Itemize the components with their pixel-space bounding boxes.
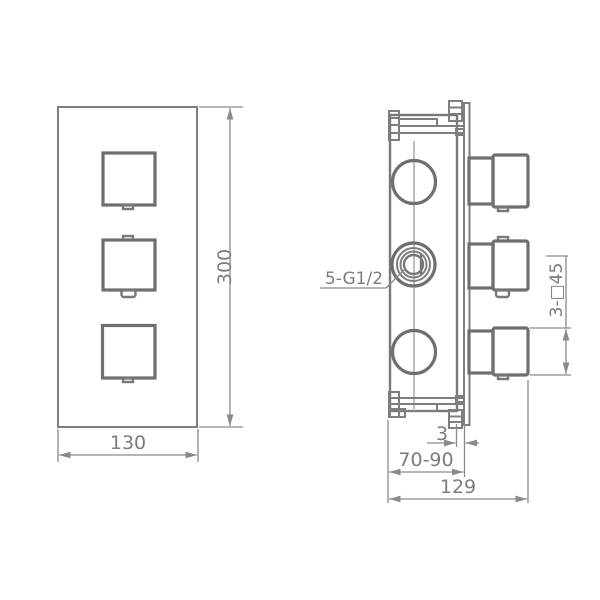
handles-label: 3-□45 — [547, 263, 567, 318]
handle-notch — [123, 378, 133, 382]
side-handle-top — [469, 155, 528, 211]
connections-label: 5-G1/2 — [325, 269, 383, 289]
plate-gap-label: 3 — [436, 423, 448, 445]
technical-drawing-page: 300 130 — [0, 0, 600, 600]
dimension-handle-size: 3-□45 — [530, 256, 571, 375]
dimension-front-height: 300 — [199, 107, 243, 427]
handle-notch — [498, 375, 508, 379]
front-handle-bottom — [103, 326, 156, 383]
side-handle-bottom — [469, 328, 528, 379]
temperature-stop-button — [122, 290, 136, 297]
front-width-label: 130 — [110, 432, 146, 454]
mounting-bracket-top — [389, 101, 464, 140]
install-depth-label: 70-90 — [398, 449, 453, 471]
handle-notch — [498, 207, 508, 211]
front-handle-top — [103, 153, 155, 209]
front-height-label: 300 — [214, 249, 236, 285]
side-handle-middle — [469, 237, 528, 297]
total-depth-label: 129 — [440, 476, 476, 498]
temperature-stop-button — [496, 290, 509, 297]
mounting-bracket-bottom — [389, 392, 464, 428]
front-view: 300 130 — [58, 107, 243, 462]
handle-notch — [123, 205, 133, 209]
front-handle-middle — [103, 236, 155, 297]
dimension-front-width: 130 — [58, 429, 198, 462]
technical-drawing-canvas: 300 130 — [0, 0, 600, 600]
side-view: 5-G1/2 3-□45 3 70-90 — [320, 101, 571, 503]
